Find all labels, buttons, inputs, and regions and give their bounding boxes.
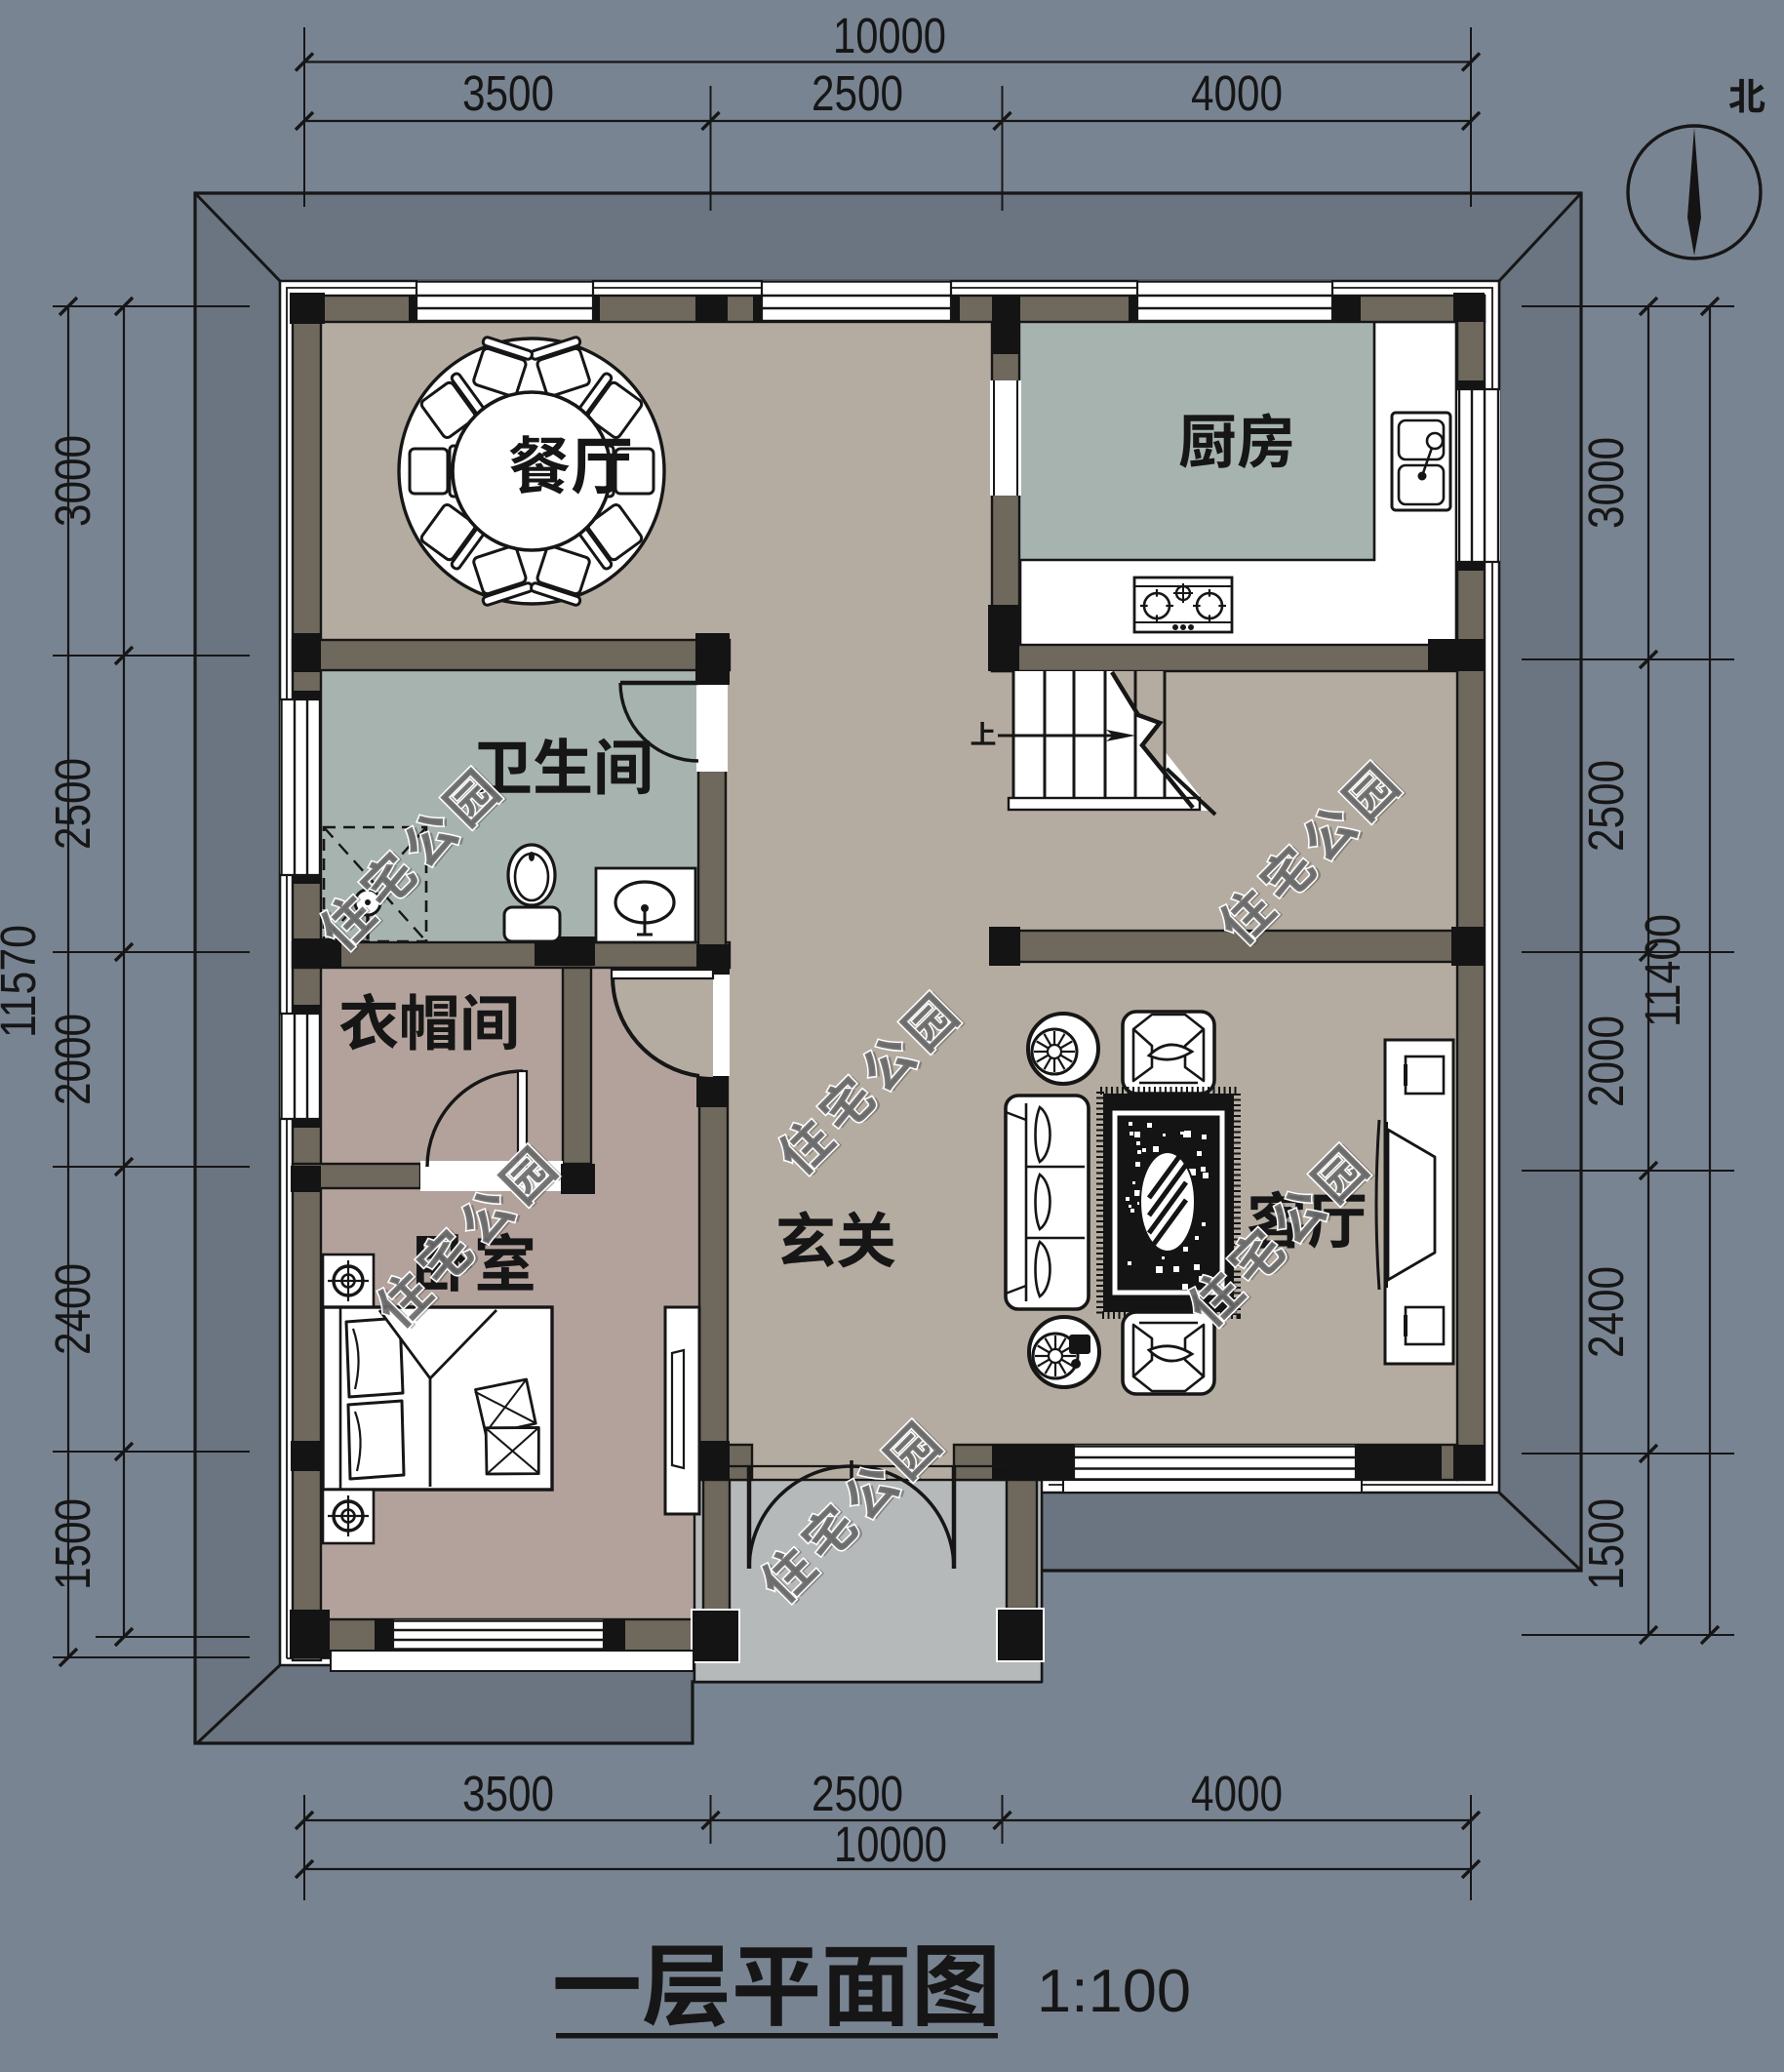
svg-text:2500: 2500	[812, 65, 903, 121]
svg-text:2400: 2400	[45, 1263, 100, 1355]
svg-text:11570: 11570	[0, 925, 46, 1038]
svg-text:2000: 2000	[1578, 1016, 1634, 1107]
svg-text:11400: 11400	[1635, 914, 1690, 1027]
svg-text:1500: 1500	[1578, 1498, 1634, 1590]
svg-text:2000: 2000	[45, 1014, 100, 1105]
svg-text:2500: 2500	[1578, 760, 1634, 852]
svg-text:4000: 4000	[1191, 1766, 1283, 1821]
svg-text:2500: 2500	[45, 758, 100, 850]
svg-text:3500: 3500	[462, 65, 554, 121]
svg-text:3000: 3000	[1578, 437, 1634, 529]
svg-text:4000: 4000	[1191, 65, 1283, 121]
svg-text:3000: 3000	[45, 435, 100, 527]
svg-text:1:100: 1:100	[1037, 1958, 1191, 2025]
svg-text:10000: 10000	[833, 8, 946, 63]
svg-text:3500: 3500	[462, 1766, 554, 1821]
svg-text:10000: 10000	[834, 1816, 947, 1872]
svg-text:2500: 2500	[812, 1766, 903, 1821]
svg-text:2400: 2400	[1578, 1266, 1634, 1358]
svg-text:1500: 1500	[45, 1498, 100, 1590]
